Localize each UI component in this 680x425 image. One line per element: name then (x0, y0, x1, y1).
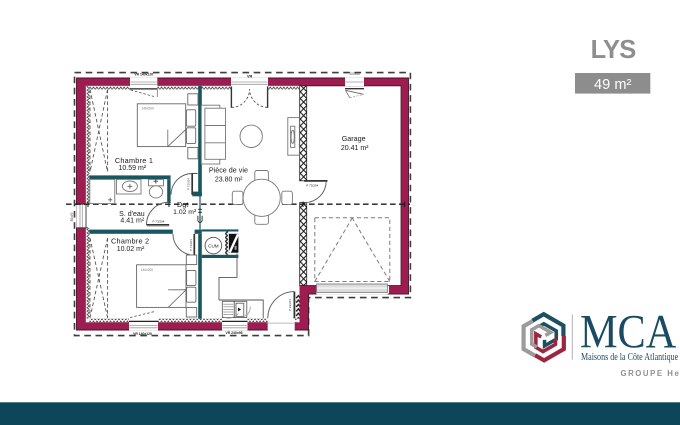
svg-text:Maisons de la Côte Atlantique: Maisons de la Côte Atlantique (581, 351, 678, 364)
svg-text:VR 240x95: VR 240x95 (226, 331, 243, 335)
svg-text:60x95: 60x95 (70, 212, 74, 221)
svg-text:P 73/204: P 73/204 (189, 239, 193, 251)
svg-text:Pièce de vie: Pièce de vie (209, 165, 248, 174)
svg-text:Dgt: Dgt (177, 200, 188, 209)
svg-text:49 m²: 49 m² (594, 77, 631, 93)
svg-text:Garage: Garage (342, 134, 366, 143)
svg-text:10.02 m²: 10.02 m² (117, 246, 145, 253)
svg-text:P 73/204: P 73/204 (187, 178, 191, 190)
svg-text:1.02 m²: 1.02 m² (173, 209, 197, 216)
svg-text:23.80 m²: 23.80 m² (215, 177, 243, 184)
svg-text:VR: VR (247, 74, 253, 78)
svg-text:LYS: LYS (591, 36, 637, 64)
svg-text:GROUPE HexaŌM: GROUPE HexaŌM (621, 369, 680, 378)
svg-text:20.41 m²: 20.41 m² (341, 145, 369, 152)
svg-text:P 73/204: P 73/204 (153, 220, 165, 224)
svg-text:CUM: CUM (208, 243, 219, 248)
svg-text:VR 140x120: VR 140x120 (134, 73, 153, 77)
svg-text:P 73/204: P 73/204 (306, 184, 318, 188)
svg-text:P 93/204: P 93/204 (288, 299, 292, 311)
svg-text:10.59 m²: 10.59 m² (118, 165, 146, 172)
svg-text:VR 140x120: VR 140x120 (133, 332, 152, 336)
svg-text:140x200: 140x200 (141, 268, 153, 272)
svg-text:Chambre 1: Chambre 1 (115, 156, 153, 165)
svg-text:Chambre 2: Chambre 2 (111, 236, 149, 245)
svg-text:4.41 m²: 4.41 m² (120, 218, 144, 225)
svg-text:140x200: 140x200 (142, 107, 154, 111)
svg-text:100x45: 100x45 (349, 72, 360, 76)
